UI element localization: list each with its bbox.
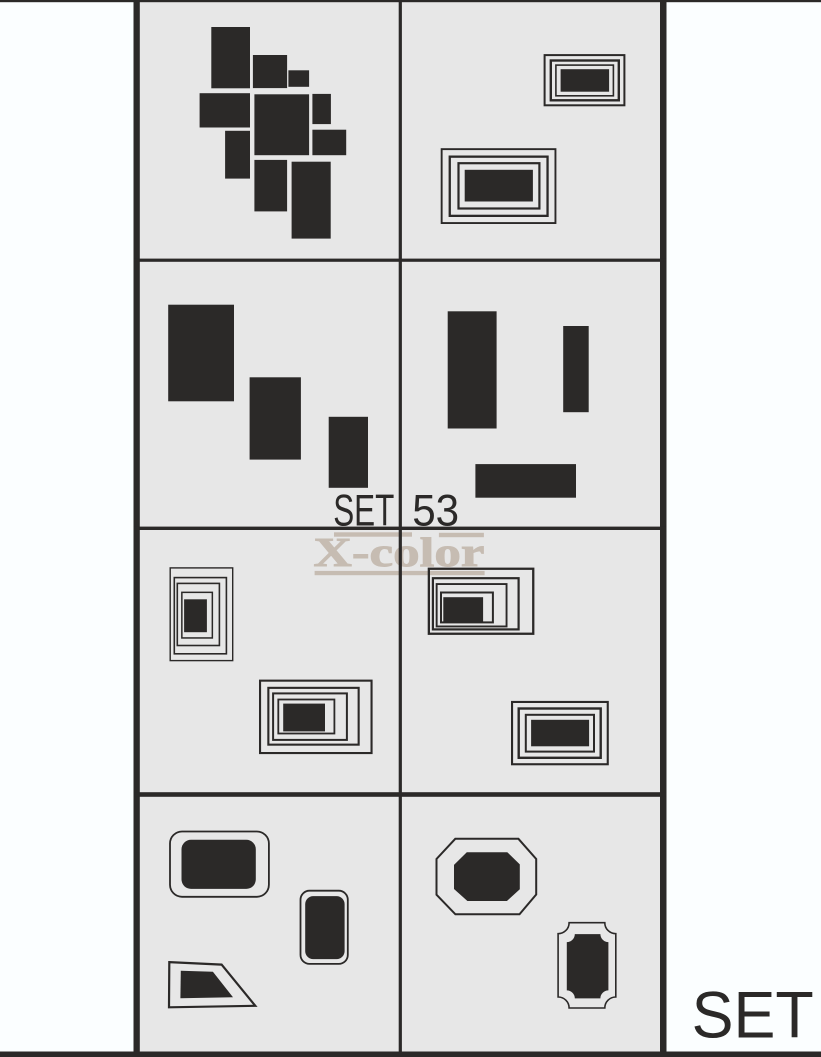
- svg-text:SET: SET: [333, 486, 394, 535]
- svg-text:53: 53: [412, 486, 459, 535]
- svg-text:SET: SET: [692, 979, 814, 1052]
